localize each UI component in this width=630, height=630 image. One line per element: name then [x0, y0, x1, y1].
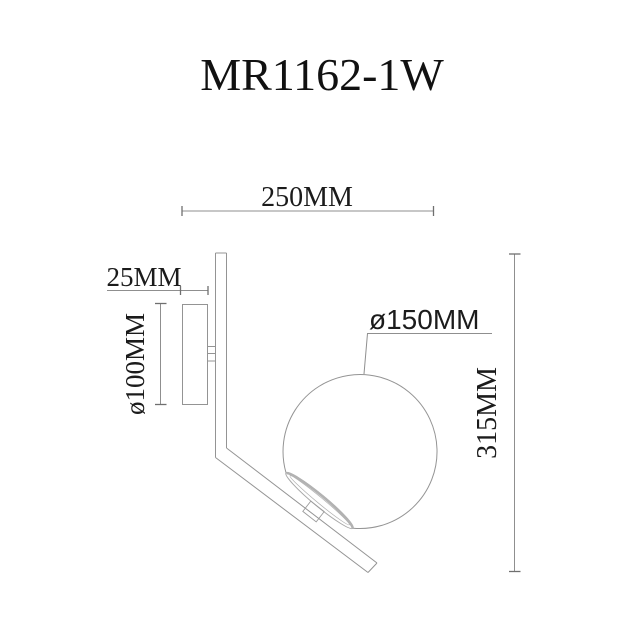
dim-label-globe-diameter: ø150MM: [369, 304, 479, 335]
lamp-fixture: [183, 253, 438, 573]
dim-label-overall-height: 315MM: [472, 367, 503, 459]
dimension-backplate-diameter: ø100MM: [120, 304, 167, 416]
dimension-backplate-depth: 25MM: [106, 262, 208, 295]
drawing-page: 250MM 25MM ø100MM 315MM ø150MM: [0, 0, 630, 630]
leader-globe-diameter: ø150MM: [364, 304, 492, 374]
globe-holder-lens: [282, 468, 357, 533]
drawing-title: MR1162-1W: [200, 49, 444, 100]
dim-label-backplate-diameter: ø100MM: [120, 313, 150, 415]
dimension-overall-width: 250MM: [182, 182, 434, 216]
dim-label-overall-width: 250MM: [261, 182, 353, 213]
dimension-overall-height: 315MM: [472, 254, 521, 572]
wall-bar-and-arm-outline: [216, 253, 378, 573]
technical-drawing-canvas: 250MM 25MM ø100MM 315MM ø150MM: [0, 0, 630, 630]
backplate: [183, 305, 208, 405]
globe: [283, 375, 437, 529]
dim-label-backplate-depth: 25MM: [106, 262, 181, 292]
